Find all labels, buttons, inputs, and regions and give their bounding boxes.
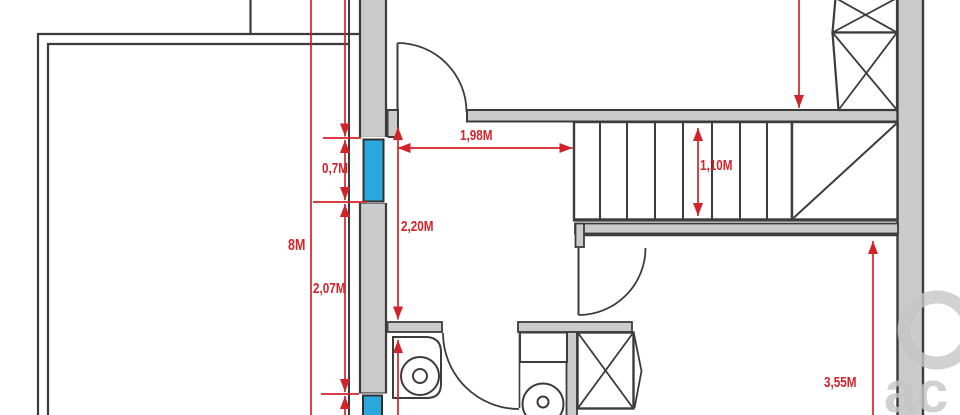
shower-door-bow xyxy=(634,334,642,408)
wall-bathroom-top-left xyxy=(388,322,443,332)
wall-bigroom-door-post xyxy=(576,224,585,248)
wall-central-lower xyxy=(360,203,386,394)
wall-bigroom-top xyxy=(575,224,898,234)
door-big-room xyxy=(579,248,646,315)
floor-plan: ac 8M 0,7M 2,07M 1,98M 2,20M 1,10M 3,55M xyxy=(0,0,960,415)
wall-bathroom-divider xyxy=(567,332,578,415)
washbasin-counter xyxy=(520,333,567,363)
door-swing-arc xyxy=(579,248,646,315)
dimension-label-8m: 8M xyxy=(288,238,305,254)
wall-central-upper xyxy=(360,0,386,138)
dimension-label-198m: 1,98M xyxy=(460,128,493,143)
wall-door-jamb xyxy=(388,110,399,137)
toilet-drain xyxy=(413,369,427,383)
washbasin-drain xyxy=(538,397,549,408)
dimension-label-220m: 2,20M xyxy=(401,219,434,234)
stair-winder-lower xyxy=(833,33,898,111)
stair-winder-upper xyxy=(833,0,898,33)
dimension-label-07m: 0,7M xyxy=(322,161,348,176)
dimension-label-207m: 2,07M xyxy=(313,281,346,296)
floor-plan-drawing: ac xyxy=(0,0,960,415)
dimension-label-355m: 3,55M xyxy=(824,375,857,390)
window-lower-glazing xyxy=(363,396,382,415)
door-swing-arc xyxy=(398,43,467,112)
wall-bathroom-top-right xyxy=(518,322,632,332)
window-upper-glazing xyxy=(364,140,384,202)
door-swing-arc xyxy=(443,333,519,409)
watermark-text: ac xyxy=(884,360,949,415)
wall-top-horizontal xyxy=(467,110,898,122)
shower-unit xyxy=(578,333,642,409)
door-bathroom xyxy=(443,333,520,409)
door-top-room xyxy=(398,43,467,112)
wall-left-room-inner xyxy=(48,44,349,415)
bathroom-fixtures xyxy=(393,333,642,415)
dimension-label-110m: 1,10M xyxy=(700,158,733,173)
